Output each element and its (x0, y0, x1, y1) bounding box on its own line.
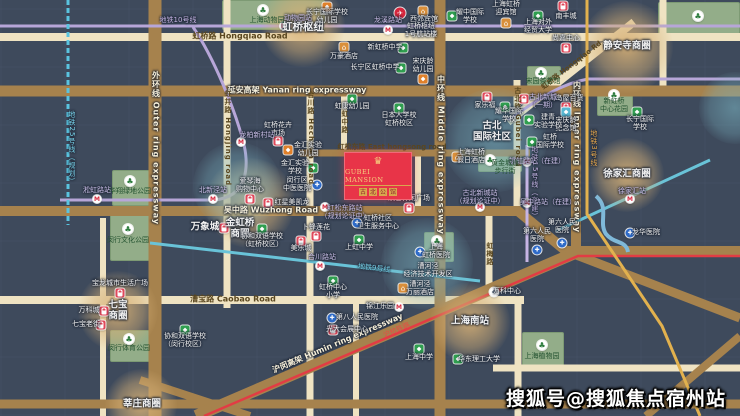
map-label: 尚嘉中心 (552, 35, 580, 43)
map-label: 新虹桥中心花园 (600, 98, 628, 114)
map-label: 华东理工大学 (458, 356, 500, 364)
map-label: 锦江乐园 (366, 303, 394, 311)
project-name-en: GUBEI MANSION (345, 168, 411, 186)
shopping-icon (100, 307, 109, 316)
map-label: 延安高架 Yanan ring expressway (228, 87, 367, 96)
school-icon: ◆ (525, 116, 534, 125)
tree-icon: ♣ (537, 340, 547, 350)
tree-icon: ♣ (258, 5, 268, 15)
tree-icon: ♣ (125, 176, 135, 186)
map-label: 长宁国际学校幼儿园 (306, 9, 348, 25)
project-block: ♛ GUBEI MANSION 古北公馆 (344, 152, 412, 200)
map-label: 南丰城 (556, 13, 577, 21)
project-name-char: 馆 (389, 188, 397, 196)
tree-icon: ♣ (693, 11, 703, 21)
map-label: 上海植物园 (525, 353, 560, 361)
map-label: 吴中路 Wuzhong Road (224, 207, 318, 216)
map-label: 虹桥路 Hongqiao Road (192, 33, 287, 42)
map-label: 中环线 Middle ring expressway (436, 75, 445, 235)
map-label: 龙柏新村站 (240, 132, 275, 140)
project-name-char: 公 (379, 188, 387, 196)
map-label: 内环线 Inner ring expressway (572, 81, 581, 233)
map-label: 上海中学 (405, 354, 433, 362)
map-label: 古北新城站（规划论证中） (456, 190, 505, 206)
map-label: 漕河泾经济技术开发区 (404, 263, 453, 279)
map-label: 红星美凯龙 (275, 199, 310, 207)
shopping-icon (405, 204, 414, 213)
station-icon: M (384, 26, 392, 34)
map-label: 协和双语学校（闵行校区） (164, 333, 206, 349)
map-label: 上海南站 (451, 317, 489, 328)
project-name-char: 古 (359, 188, 367, 196)
map-label: 华翔绿地公园 (109, 188, 151, 196)
map-label: 古北路 Gubei road (513, 87, 521, 168)
project-name-char: 北 (369, 188, 377, 196)
station-icon: M (626, 195, 634, 203)
map-label: 虹梅路 (485, 242, 493, 266)
map-label: 虹中路 (340, 110, 348, 134)
map-label: 上海动物园 (250, 17, 285, 25)
shopping-icon (562, 44, 571, 53)
map-label: 虹桥社区卫生服务中心 (357, 215, 399, 231)
map-label: 万科城 (79, 307, 100, 315)
map-label: 莘庄商圈 (123, 400, 161, 411)
map-label: 日本人学校虹桥校区 (382, 112, 417, 128)
map-label: 上虹中学 (345, 244, 373, 252)
map-label: 红松东路 East hongsong road (337, 144, 446, 152)
map-label: 外环线 Outer ring expressway (151, 71, 160, 225)
map-label: 闵行区中医医院 (283, 177, 311, 193)
project-name-cn: 古北公馆 (359, 188, 397, 196)
map-label: 漕宝路 Caobao Road (190, 296, 276, 305)
map-label: 北新泾站 (199, 187, 227, 195)
shopping-icon (246, 195, 255, 204)
hotel-icon: ⌂ (502, 19, 511, 28)
map-label: 合川路站 (308, 254, 336, 262)
tree-icon: ♣ (123, 224, 133, 234)
map-label: 爱琴海购物中心 (236, 178, 264, 194)
map-label: 美乐城 (291, 245, 312, 253)
map-label: 建青实验学校 (534, 114, 562, 130)
map-label: 万科中心 (493, 288, 521, 296)
shopping-icon (559, 2, 568, 11)
map-label: 万豪酒店 (330, 53, 358, 61)
map-label: 虹桥中心小学 (319, 284, 347, 300)
shopping-icon (274, 137, 283, 146)
station-icon: M (93, 195, 101, 203)
map-label: 地铁10号线 (160, 17, 197, 25)
map-label: 七宝商圈 (108, 300, 127, 321)
map-label: 上海虹桥医院 (422, 244, 450, 260)
map-label: 闵行体育公园 (108, 345, 150, 353)
map-label: 闵行文化公园 (107, 237, 149, 245)
kindergarten-icon: ◆ (284, 146, 293, 155)
map-label: 第六人民医院 (523, 228, 551, 244)
map-label: 长宁国际学校 (626, 116, 654, 132)
map-label: 金汇实验学校 (281, 160, 309, 176)
shopping-icon (312, 232, 321, 241)
map-label: 上海虹桥假日酒店 (457, 149, 485, 165)
map-label: 宋庆龄幼儿园 (413, 58, 434, 74)
map-label: 地铁3号线 (589, 129, 597, 166)
map-label: 静安寺商圈 (603, 42, 651, 53)
station-icon: M (316, 262, 324, 270)
map-label: 古北国际社区 (473, 121, 511, 142)
map-label: 徐家汇商圈 (603, 170, 651, 181)
map-label: 龙华医院 (632, 229, 660, 237)
map-label: 万象城 (191, 223, 220, 234)
map-label: 徐家汇站 (618, 188, 646, 196)
map-label: 漕河泾万丽酒店 (406, 281, 434, 297)
map-label: 黄金城道步行街 (491, 160, 519, 176)
crown-icon: ♛ (374, 157, 383, 167)
station-icon: M (395, 303, 403, 311)
map-label: 地铁25号线（规划） (67, 111, 75, 186)
map-label: 吴中路站（在建） (520, 199, 576, 207)
tree-icon: ♣ (124, 334, 134, 344)
map-label: 七宝老街 (72, 321, 100, 329)
station-icon: M (209, 195, 217, 203)
map-label: 宝龙城市生活广场 (92, 280, 148, 288)
map-label: 家乐福 (475, 102, 496, 110)
map-label: 协和双语学校（虹桥校区） (241, 233, 283, 249)
map-label: 虹桥枢纽1号航站楼 (405, 23, 437, 39)
misc-icon: ◆ (562, 108, 571, 117)
hospital-icon: ✚ (558, 239, 567, 248)
map-label: 虹桥国际学校 (536, 134, 564, 150)
map-label: 古北新城（一期） (529, 94, 557, 110)
hospital-icon: ✚ (533, 246, 542, 255)
map-label: 新虹桥中学 (368, 44, 403, 52)
map-label: 耀中国际学校 (456, 9, 484, 25)
map-canvas: ♛ GUBEI MANSION 古北公馆 搜狐号@搜狐焦点宿州站 MMMMMMM… (0, 0, 740, 416)
map-label: 第八人民医院 (336, 314, 378, 322)
map-label: 上海虹桥迎宾馆 (492, 1, 520, 17)
map-label: 上海对外经贸大学 (524, 19, 552, 35)
map-label: 耀华国际学校 (495, 108, 523, 124)
map-label: 虹康幼儿园 (335, 103, 370, 111)
map-label: 虹井路 Hongjing road (223, 90, 231, 186)
map-label: 长宁区虹桥中学 (351, 64, 400, 72)
map-label: 第六人民医院 (548, 219, 576, 235)
map-label: 光大会展中心 (326, 326, 368, 334)
map-label: 龙溪路站 (374, 17, 402, 25)
watermark: 搜狐号@搜狐焦点宿州站 (506, 384, 726, 411)
map-label: 宋园茶艺馆 (526, 78, 561, 86)
road-path (566, 251, 740, 318)
map-label: 金汇实验幼儿园 (294, 142, 322, 158)
shopping-icon (116, 289, 125, 298)
map-label: 卜蜂莲花 (302, 224, 330, 232)
hotel-icon: ⌂ (340, 43, 349, 52)
kindergarten-icon: ◆ (419, 75, 428, 84)
map-label: 淞虹路站 (83, 187, 111, 195)
